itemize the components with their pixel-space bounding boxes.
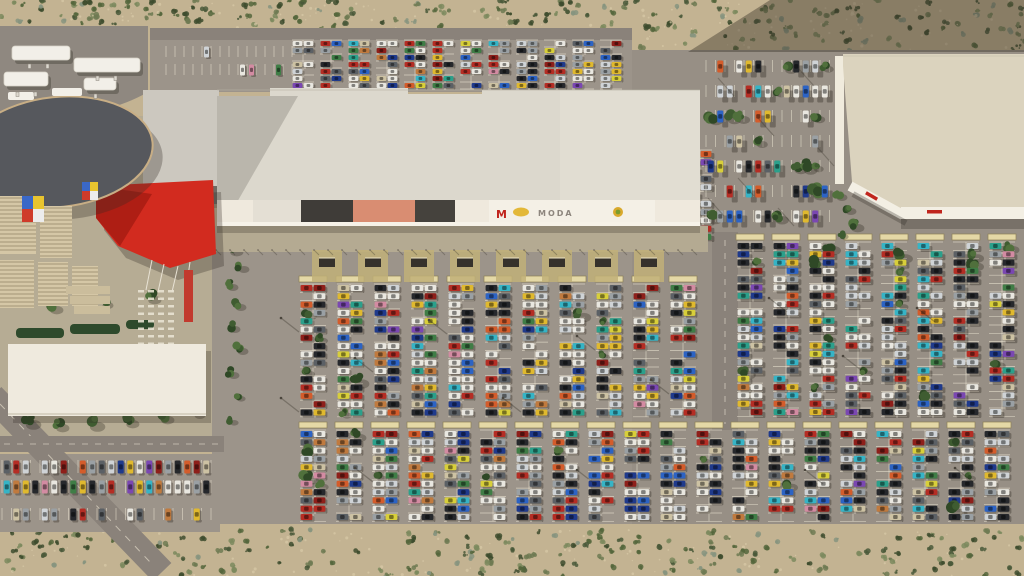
shrub bbox=[586, 546, 588, 548]
car-cabin bbox=[353, 515, 357, 519]
shrub bbox=[507, 541, 511, 545]
shrub bbox=[463, 554, 466, 557]
car-cabin bbox=[970, 344, 974, 348]
car-cabin bbox=[304, 286, 308, 290]
car-cabin bbox=[993, 352, 997, 356]
shrub bbox=[148, 13, 151, 16]
car-cabin bbox=[898, 261, 902, 265]
shrub bbox=[640, 565, 642, 567]
car-cabin bbox=[849, 277, 853, 281]
car-cabin bbox=[352, 77, 356, 80]
shrub bbox=[115, 23, 117, 25]
car-cabin bbox=[862, 269, 866, 273]
sand-speckle bbox=[675, 44, 677, 46]
car-cabin bbox=[304, 515, 308, 519]
car-cabin bbox=[993, 244, 997, 248]
shrub bbox=[199, 536, 204, 541]
car-cabin bbox=[465, 361, 469, 365]
car-cabin bbox=[1006, 352, 1010, 356]
sand-speckle bbox=[368, 5, 369, 6]
car-cabin bbox=[497, 465, 501, 469]
car-cabin bbox=[957, 252, 961, 256]
car-cabin bbox=[341, 352, 345, 356]
shrub bbox=[392, 573, 394, 575]
car-cabin bbox=[408, 49, 412, 52]
car-cabin bbox=[464, 56, 468, 59]
car-cabin bbox=[389, 474, 393, 478]
car-cabin bbox=[296, 49, 300, 52]
shrub bbox=[95, 14, 100, 19]
car-cabin bbox=[600, 369, 604, 373]
car-cabin bbox=[428, 286, 432, 290]
car-cabin bbox=[576, 344, 580, 348]
shrub bbox=[824, 537, 826, 539]
shrub bbox=[710, 552, 714, 556]
tree bbox=[783, 64, 789, 70]
car-cabin bbox=[448, 440, 452, 444]
sand-speckle bbox=[961, 558, 964, 561]
sand-speckle bbox=[333, 532, 335, 534]
car-cabin bbox=[391, 411, 395, 415]
shrub bbox=[478, 571, 483, 576]
shrub bbox=[736, 568, 741, 573]
sand-speckle bbox=[646, 37, 649, 40]
car-cabin bbox=[849, 261, 853, 265]
car-cabin bbox=[862, 360, 866, 364]
shrub bbox=[292, 530, 294, 532]
car-cabin bbox=[563, 294, 567, 298]
car-cabin bbox=[205, 50, 208, 54]
shrub bbox=[184, 11, 189, 16]
shrub bbox=[658, 545, 663, 550]
sand-speckle bbox=[305, 19, 306, 20]
car-cabin bbox=[604, 77, 608, 80]
car-cabin bbox=[408, 56, 412, 59]
car-cabin bbox=[335, 42, 339, 45]
car-cabin bbox=[317, 465, 321, 469]
car-cabin bbox=[885, 261, 889, 265]
car-cabin bbox=[489, 386, 493, 390]
sand-speckle bbox=[54, 550, 56, 552]
sand-speckle bbox=[122, 19, 124, 21]
car-cabin bbox=[777, 286, 781, 290]
shrub bbox=[602, 540, 606, 544]
car-cabin bbox=[849, 286, 853, 290]
car-cabin bbox=[754, 269, 758, 273]
car-cabin bbox=[492, 84, 496, 87]
car-cabin bbox=[307, 63, 311, 66]
car-cabin bbox=[447, 77, 451, 80]
car-cabin bbox=[934, 360, 938, 364]
car-cabin bbox=[408, 42, 412, 45]
car-cabin bbox=[754, 344, 758, 348]
car-cabin bbox=[613, 303, 617, 307]
shrub bbox=[448, 9, 450, 11]
shrub bbox=[12, 0, 16, 4]
shrub bbox=[711, 528, 716, 533]
car-cabin bbox=[448, 457, 452, 461]
shrub bbox=[204, 565, 206, 567]
car-cabin bbox=[520, 457, 524, 461]
shrub bbox=[711, 546, 715, 550]
sand-speckle bbox=[649, 36, 650, 37]
sand-speckle bbox=[131, 15, 134, 18]
shrub bbox=[933, 567, 936, 570]
car-cabin bbox=[898, 327, 902, 331]
shrub bbox=[980, 547, 984, 551]
car-cabin bbox=[559, 56, 563, 59]
shrub bbox=[739, 552, 744, 557]
car-cabin bbox=[563, 411, 567, 415]
shrub bbox=[611, 564, 614, 567]
car-cabin bbox=[741, 377, 745, 381]
car-cabin bbox=[502, 311, 506, 315]
shrub bbox=[357, 551, 361, 555]
car-cabin bbox=[849, 377, 853, 381]
shrub bbox=[89, 537, 93, 541]
car-cabin bbox=[934, 335, 938, 339]
car-cabin bbox=[389, 449, 393, 453]
shrub bbox=[406, 566, 410, 570]
car-cabin bbox=[934, 277, 938, 281]
car-cabin bbox=[898, 377, 902, 381]
car-cabin bbox=[452, 352, 456, 356]
car-cabin bbox=[526, 328, 530, 332]
car-cabin bbox=[539, 319, 543, 323]
car-cabin bbox=[354, 402, 358, 406]
shrub bbox=[124, 6, 126, 8]
car-cabin bbox=[317, 311, 321, 315]
car-cabin bbox=[502, 319, 506, 323]
car-cabin bbox=[503, 84, 507, 87]
sand-speckle bbox=[300, 549, 303, 552]
shrub bbox=[176, 553, 180, 557]
car-cabin bbox=[448, 482, 452, 486]
car-cabin bbox=[354, 303, 358, 307]
car-cabin bbox=[813, 139, 817, 144]
car-cabin bbox=[324, 42, 328, 45]
car-cabin bbox=[354, 361, 358, 365]
shrub bbox=[411, 21, 413, 23]
car-cabin bbox=[241, 68, 244, 72]
shrub bbox=[283, 530, 285, 532]
car-cabin bbox=[674, 336, 678, 340]
car-cabin bbox=[503, 63, 507, 66]
shrub bbox=[396, 20, 398, 22]
car-cabin bbox=[970, 385, 974, 389]
shrub bbox=[248, 1, 253, 6]
car-cabin bbox=[563, 386, 567, 390]
shrub bbox=[413, 538, 415, 540]
car-cabin bbox=[921, 277, 925, 281]
car-cabin bbox=[790, 277, 794, 281]
shrub bbox=[182, 574, 184, 576]
sand-speckle bbox=[779, 568, 782, 571]
cart-shelter bbox=[952, 234, 980, 240]
car-cabin bbox=[425, 482, 429, 486]
car-cabin bbox=[448, 432, 452, 436]
car-cabin bbox=[600, 411, 604, 415]
shrub bbox=[984, 548, 987, 551]
tree bbox=[811, 384, 817, 390]
car-cabin bbox=[766, 214, 770, 219]
car-cabin bbox=[354, 311, 358, 315]
car-cabin bbox=[600, 311, 604, 315]
car-cabin bbox=[563, 377, 567, 381]
car-cabin bbox=[790, 410, 794, 414]
car-cabin bbox=[826, 410, 830, 414]
shrub bbox=[679, 15, 681, 17]
car-cabin bbox=[613, 411, 617, 415]
car-cabin bbox=[862, 377, 866, 381]
car-cabin bbox=[452, 311, 456, 315]
car-cabin bbox=[415, 344, 419, 348]
car-cabin bbox=[452, 286, 456, 290]
car-cabin bbox=[862, 319, 866, 323]
car-cabin bbox=[415, 369, 419, 373]
car-cabin bbox=[754, 385, 758, 389]
shrub bbox=[837, 538, 839, 540]
car-cabin bbox=[747, 89, 751, 94]
car-cabin bbox=[526, 286, 530, 290]
car-cabin bbox=[650, 303, 654, 307]
sand-speckle bbox=[1008, 544, 1010, 546]
car-cabin bbox=[885, 344, 889, 348]
car-cabin bbox=[341, 369, 345, 373]
shrub bbox=[18, 19, 22, 23]
shrub bbox=[281, 529, 283, 531]
car-cabin bbox=[637, 328, 641, 332]
car-cabin bbox=[615, 77, 619, 80]
shrub bbox=[728, 22, 730, 24]
car-cabin bbox=[484, 482, 488, 486]
car-cabin bbox=[687, 352, 691, 356]
car-cabin bbox=[615, 63, 619, 66]
car-cabin bbox=[489, 394, 493, 398]
shrub bbox=[181, 556, 185, 560]
car-cabin bbox=[826, 360, 830, 364]
car-cabin bbox=[826, 252, 830, 256]
shrub bbox=[657, 26, 660, 29]
car-cabin bbox=[885, 369, 889, 373]
shrub bbox=[928, 534, 932, 538]
sand-speckle bbox=[671, 9, 673, 11]
car-cabin bbox=[766, 114, 770, 119]
shrub bbox=[126, 4, 130, 8]
car-cabin bbox=[674, 294, 678, 298]
car-cabin bbox=[728, 189, 732, 194]
sand-speckle bbox=[758, 558, 760, 560]
sand-speckle bbox=[662, 45, 664, 47]
car-cabin bbox=[957, 302, 961, 306]
car-cabin bbox=[615, 70, 619, 73]
shrub bbox=[248, 548, 252, 552]
car-cabin bbox=[352, 56, 356, 59]
car-cabin bbox=[354, 411, 358, 415]
car-cabin bbox=[934, 294, 938, 298]
car-cabin bbox=[489, 411, 493, 415]
car-cabin bbox=[849, 294, 853, 298]
car-cabin bbox=[862, 277, 866, 281]
car-cabin bbox=[380, 42, 384, 45]
car-cabin bbox=[993, 294, 997, 298]
sand-speckle bbox=[729, 536, 731, 538]
car-cabin bbox=[412, 432, 416, 436]
car-cabin bbox=[823, 89, 827, 94]
car-cabin bbox=[526, 402, 530, 406]
car-cabin bbox=[804, 89, 808, 94]
car-cabin bbox=[600, 303, 604, 307]
car-cabin bbox=[539, 361, 543, 365]
sand-speckle bbox=[506, 25, 507, 26]
car-cabin bbox=[428, 361, 432, 365]
car-cabin bbox=[934, 310, 938, 314]
car-cabin bbox=[539, 303, 543, 307]
car-cabin bbox=[637, 344, 641, 348]
sand-speckle bbox=[896, 559, 897, 560]
car-cabin bbox=[428, 377, 432, 381]
car-cabin bbox=[898, 360, 902, 364]
car-cabin bbox=[957, 393, 961, 397]
car-cabin bbox=[674, 286, 678, 290]
shrub bbox=[380, 21, 384, 25]
shrub bbox=[544, 12, 549, 17]
sand-speckle bbox=[838, 546, 840, 548]
car-cabin bbox=[484, 465, 488, 469]
car-cabin bbox=[378, 361, 382, 365]
car-cabin bbox=[970, 269, 974, 273]
car-cabin bbox=[502, 344, 506, 348]
car-cabin bbox=[754, 244, 758, 248]
sand-speckle bbox=[70, 18, 72, 20]
car-cabin bbox=[452, 411, 456, 415]
car-cabin bbox=[380, 77, 384, 80]
car-cabin bbox=[317, 498, 321, 502]
car-cabin bbox=[502, 328, 506, 332]
sand-speckle bbox=[725, 15, 727, 17]
car-cabin bbox=[849, 335, 853, 339]
tree bbox=[802, 162, 812, 172]
shrub bbox=[331, 561, 335, 565]
shrub bbox=[949, 554, 953, 558]
car-cabin bbox=[650, 386, 654, 390]
sand-speckle bbox=[884, 532, 886, 534]
car-cabin bbox=[756, 89, 760, 94]
sand-speckle bbox=[350, 533, 352, 535]
car-cabin bbox=[354, 386, 358, 390]
car-cabin bbox=[352, 63, 356, 66]
car-cabin bbox=[340, 474, 344, 478]
car-cabin bbox=[754, 286, 758, 290]
shrub bbox=[655, 13, 657, 15]
car-cabin bbox=[317, 386, 321, 390]
sand-speckle bbox=[122, 16, 124, 18]
shrub bbox=[22, 556, 24, 558]
shrub bbox=[618, 539, 620, 541]
car-cabin bbox=[637, 303, 641, 307]
shrub bbox=[179, 536, 181, 538]
car-cabin bbox=[970, 294, 974, 298]
car-cabin bbox=[957, 294, 961, 298]
shrub bbox=[343, 20, 348, 25]
shrub bbox=[597, 533, 600, 536]
car-cabin bbox=[1006, 319, 1010, 323]
scene-svg: M MODA bbox=[0, 0, 1024, 576]
car-cabin bbox=[849, 385, 853, 389]
shrub bbox=[576, 541, 580, 545]
car-cabin bbox=[993, 369, 997, 373]
car-cabin bbox=[436, 49, 440, 52]
shrub bbox=[174, 9, 178, 13]
shrub bbox=[10, 532, 14, 536]
tree bbox=[772, 214, 778, 220]
car-cabin bbox=[785, 89, 789, 94]
shrub bbox=[487, 555, 490, 558]
shrub bbox=[894, 552, 896, 554]
car-cabin bbox=[613, 319, 617, 323]
shrub bbox=[775, 539, 780, 544]
shrub bbox=[456, 560, 460, 564]
car-cabin bbox=[363, 77, 367, 80]
car-cabin bbox=[674, 361, 678, 365]
shrub bbox=[83, 560, 86, 563]
shrub bbox=[530, 23, 533, 26]
car-cabin bbox=[777, 385, 781, 389]
shrub bbox=[34, 539, 39, 544]
car-cabin bbox=[391, 336, 395, 340]
car-cabin bbox=[741, 344, 745, 348]
car-cabin bbox=[304, 386, 308, 390]
car-cabin bbox=[921, 294, 925, 298]
sand-speckle bbox=[335, 17, 338, 20]
car-cabin bbox=[615, 56, 619, 59]
car-cabin bbox=[1006, 402, 1010, 406]
shrub bbox=[506, 12, 509, 15]
shrub bbox=[14, 549, 18, 553]
car-cabin bbox=[425, 449, 429, 453]
tree bbox=[991, 360, 998, 367]
car-cabin bbox=[970, 352, 974, 356]
car-cabin bbox=[600, 361, 604, 365]
shrub bbox=[689, 548, 692, 551]
car-cabin bbox=[826, 286, 830, 290]
car-cabin bbox=[576, 328, 580, 332]
car-cabin bbox=[934, 344, 938, 348]
car-cabin bbox=[317, 328, 321, 332]
car-cabin bbox=[718, 214, 722, 219]
car-cabin bbox=[934, 393, 938, 397]
car-cabin bbox=[352, 42, 356, 45]
sand-speckle bbox=[473, 10, 476, 13]
shrub bbox=[116, 10, 118, 12]
shrub bbox=[43, 0, 46, 3]
car-cabin bbox=[436, 77, 440, 80]
shrub bbox=[753, 552, 757, 556]
car-cabin bbox=[970, 244, 974, 248]
shrub bbox=[389, 574, 391, 576]
car-cabin bbox=[794, 64, 798, 69]
sand-speckle bbox=[232, 557, 234, 559]
shrub bbox=[1007, 565, 1012, 570]
car-cabin bbox=[419, 56, 423, 59]
shrub bbox=[609, 550, 613, 554]
car-cabin bbox=[777, 410, 781, 414]
shrub bbox=[709, 546, 711, 548]
car-cabin bbox=[436, 63, 440, 66]
shrub bbox=[807, 562, 810, 565]
shrub bbox=[524, 555, 529, 560]
car-cabin bbox=[436, 42, 440, 45]
